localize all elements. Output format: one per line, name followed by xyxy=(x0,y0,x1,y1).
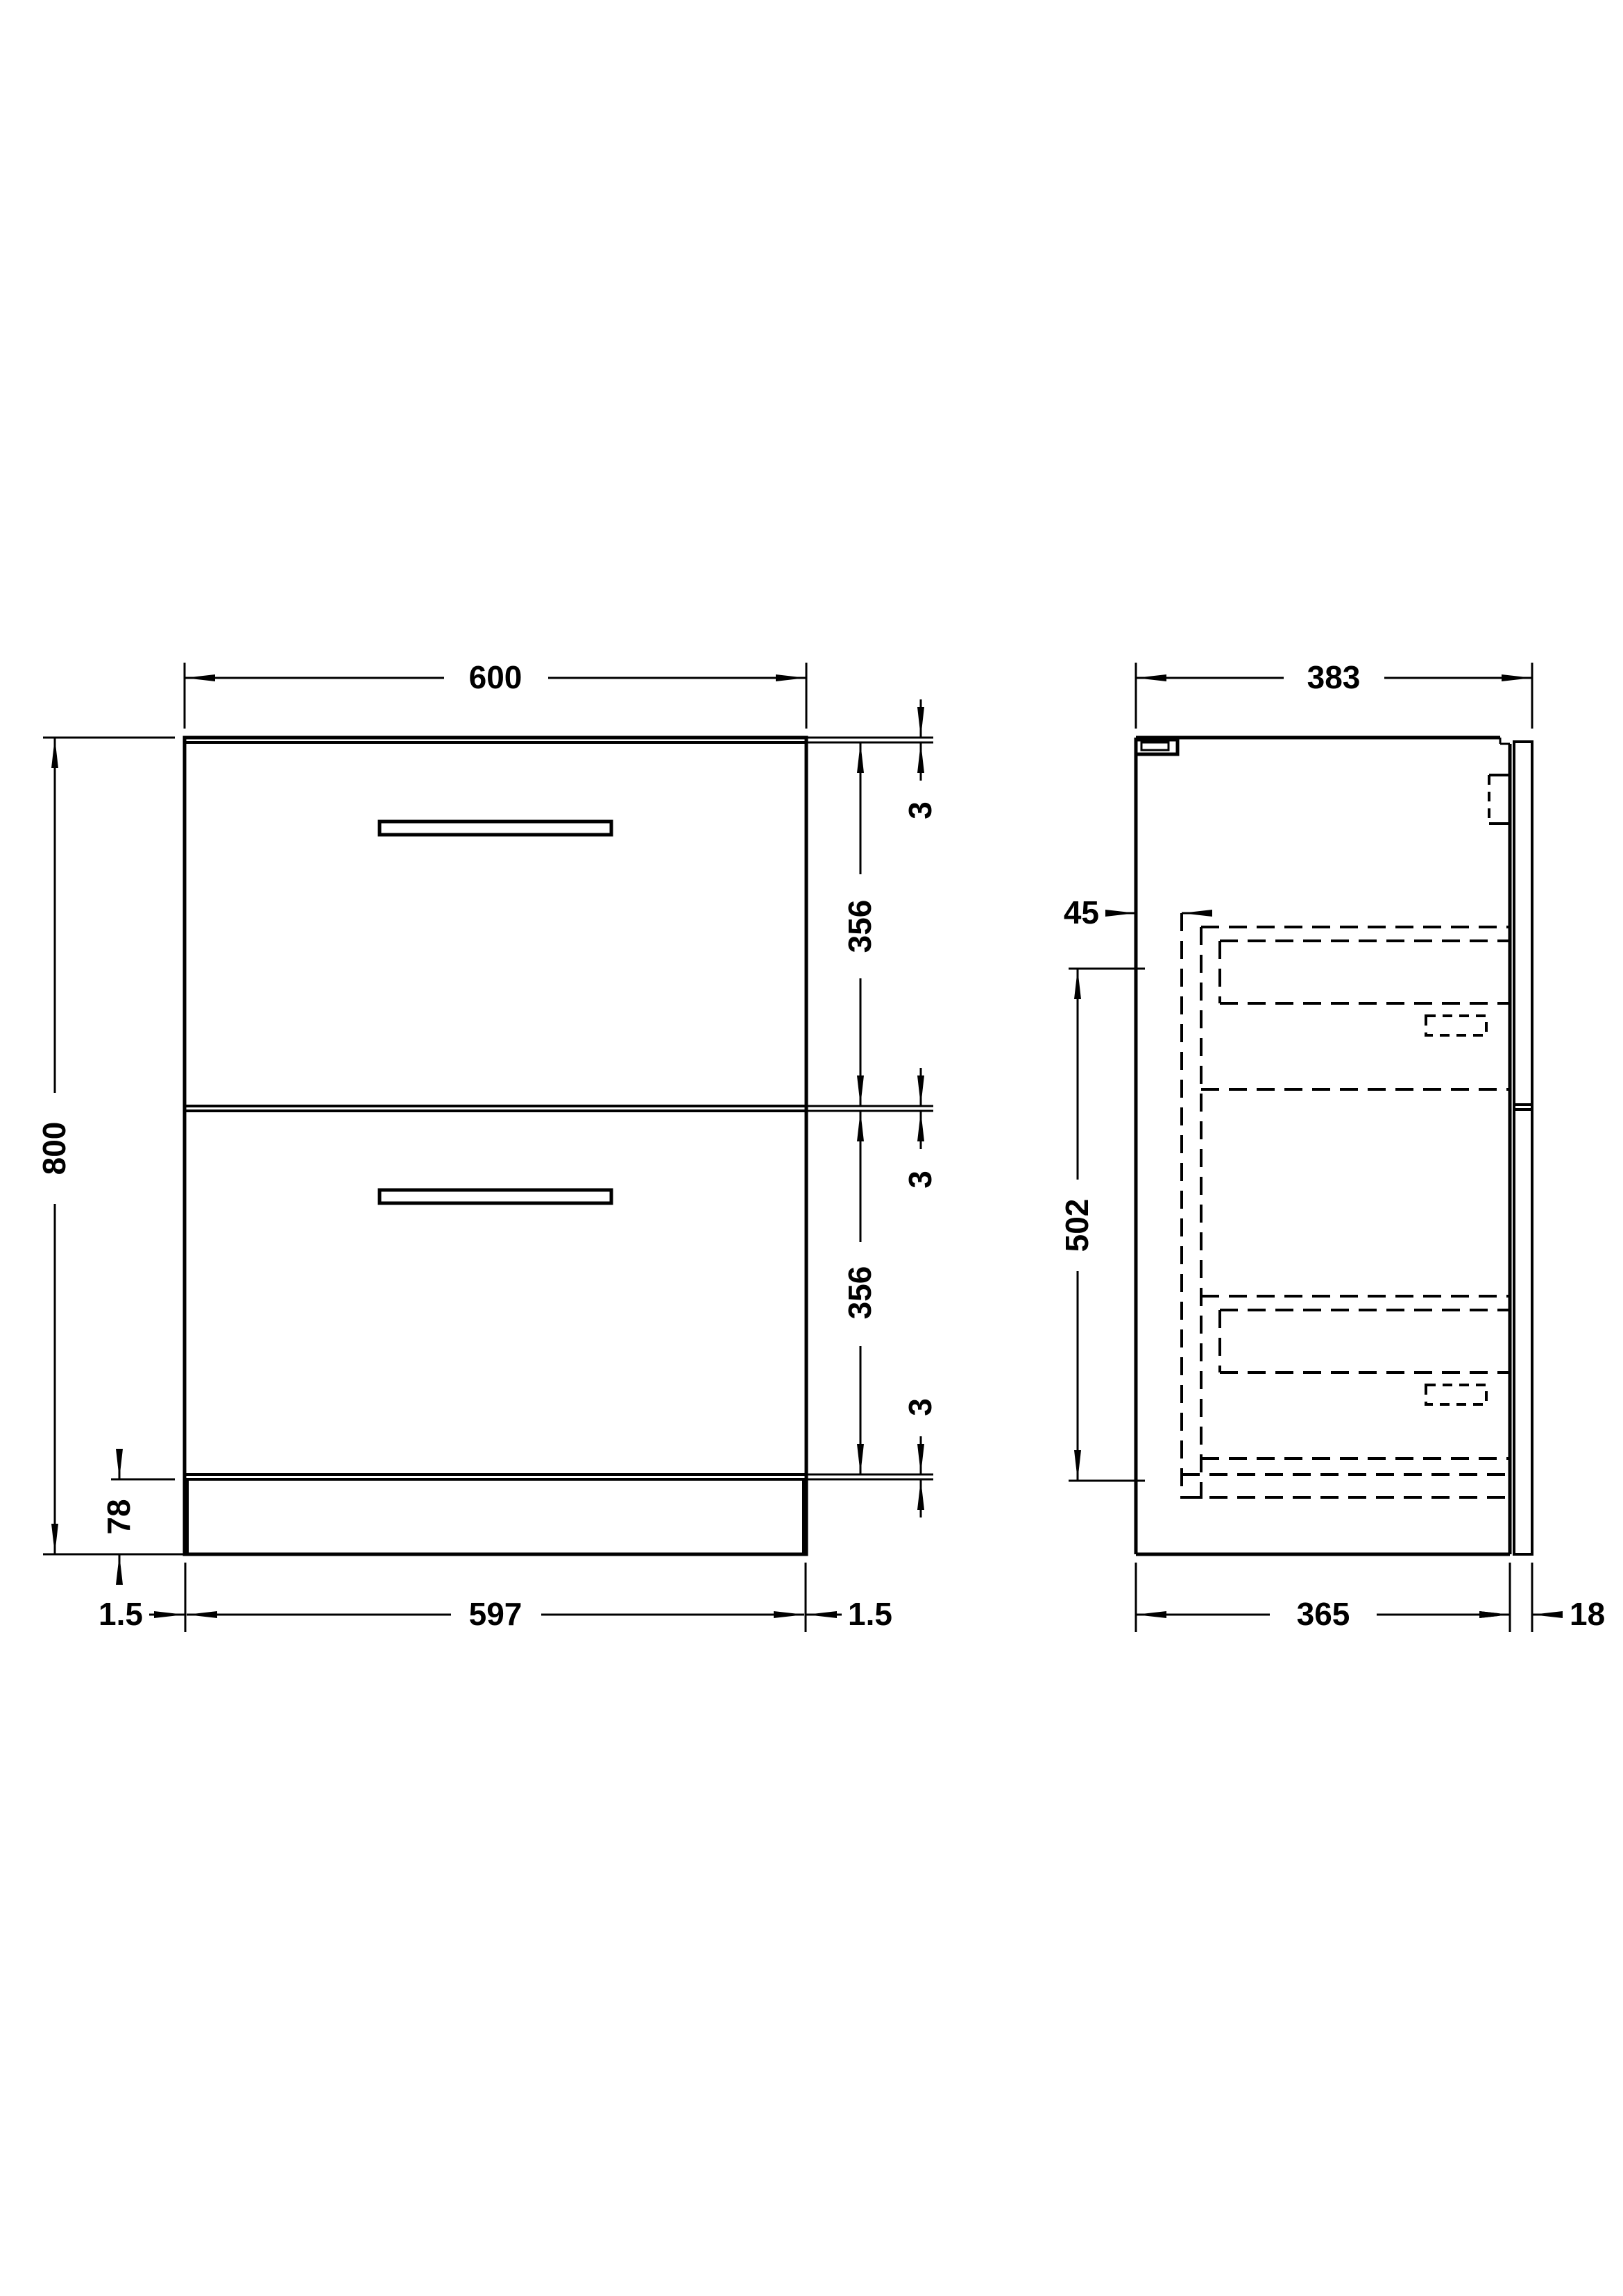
drawer1-handle xyxy=(380,822,611,835)
drawer1-runner xyxy=(1426,1016,1486,1035)
dim-drawer2-height: 356 xyxy=(842,1266,878,1320)
dim-front-height: 800 xyxy=(36,1122,72,1175)
dim-carcass-depth: 365 xyxy=(1297,1596,1350,1632)
back-panel xyxy=(1514,742,1532,1554)
front-view xyxy=(185,738,806,1554)
side-view xyxy=(1136,738,1532,1554)
dim-front-width: 600 xyxy=(469,659,522,695)
dim-drawer1-height: 356 xyxy=(842,900,878,953)
dim-plinth-height: 78 xyxy=(101,1499,137,1534)
dim-bottom-gap: 3 xyxy=(902,1398,938,1416)
dim-plinth-width: 597 xyxy=(469,1596,522,1632)
side-dimensions: 383 45 502 365 18 xyxy=(1059,659,1605,1632)
fixing-bracket-inner xyxy=(1141,742,1169,750)
dim-internal-height: 502 xyxy=(1059,1199,1095,1252)
dim-back-panel: 18 xyxy=(1570,1596,1605,1632)
drawer2-runner xyxy=(1426,1385,1486,1404)
drawer2-handle xyxy=(380,1190,611,1203)
dim-plinth-inset-left: 1.5 xyxy=(99,1596,143,1632)
drawing-page: 600 800 3 356 3 356 3 xyxy=(0,0,1623,2296)
front-carcass-outline xyxy=(185,738,806,1554)
technical-drawing: 600 800 3 356 3 356 3 xyxy=(0,0,1623,2296)
dim-drawer-setback: 45 xyxy=(1064,894,1099,930)
dim-plinth-inset-right: 1.5 xyxy=(848,1596,892,1632)
dim-middle-gap: 3 xyxy=(902,1171,938,1189)
dim-side-depth: 383 xyxy=(1307,659,1361,695)
dim-top-gap: 3 xyxy=(902,801,938,819)
